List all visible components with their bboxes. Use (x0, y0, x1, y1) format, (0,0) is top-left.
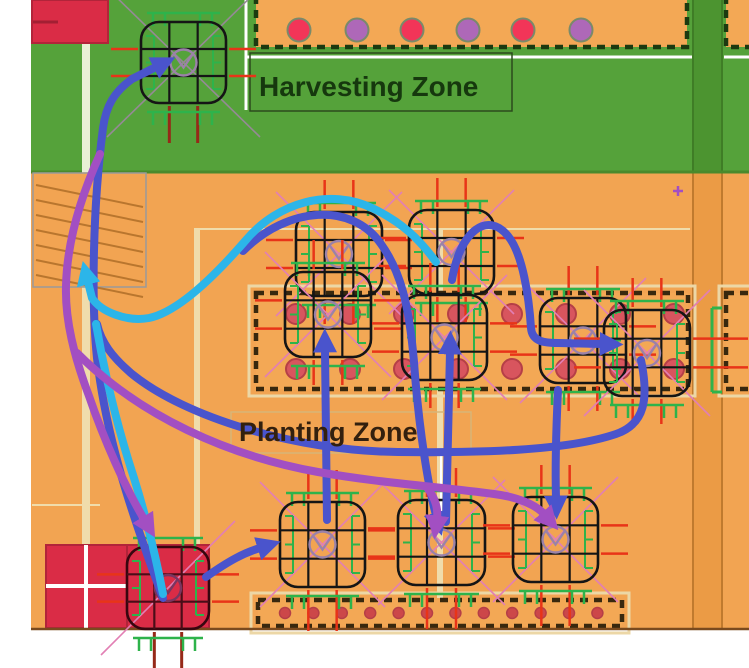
crop-dot-red (288, 19, 311, 42)
seed-dot (556, 359, 576, 379)
seedling-dot (592, 608, 603, 619)
seed-dot (664, 304, 684, 324)
seedling-dot (393, 608, 404, 619)
seed-dot (502, 359, 522, 379)
seed-dot (556, 304, 576, 324)
trajectory-blue (556, 390, 558, 498)
crop-dot-red (512, 19, 535, 42)
seed-dot (664, 359, 684, 379)
planting-zone-label: Planting Zone (239, 419, 418, 446)
crop-dot-purple (570, 19, 593, 42)
bed-soil (726, 293, 749, 389)
trajectory-blue (446, 352, 450, 522)
crop-dot-purple (346, 19, 369, 42)
crop-dot-purple (457, 19, 480, 42)
seedling-dot (336, 608, 347, 619)
seed-dot (502, 304, 522, 324)
crop-dot-red (401, 19, 424, 42)
farm-map-canvas: Harvesting Zone Planting Zone (0, 0, 749, 668)
seedling-dot (365, 608, 376, 619)
field-path-strip (194, 228, 200, 548)
seedling-dot (478, 608, 489, 619)
track-column-green (693, 0, 722, 172)
seedling-dot (507, 608, 518, 619)
seedling-dot (280, 608, 291, 619)
track-column-orange (693, 172, 722, 630)
bed-soil (726, 0, 749, 47)
harvesting-zone-label: Harvesting Zone (259, 73, 478, 101)
